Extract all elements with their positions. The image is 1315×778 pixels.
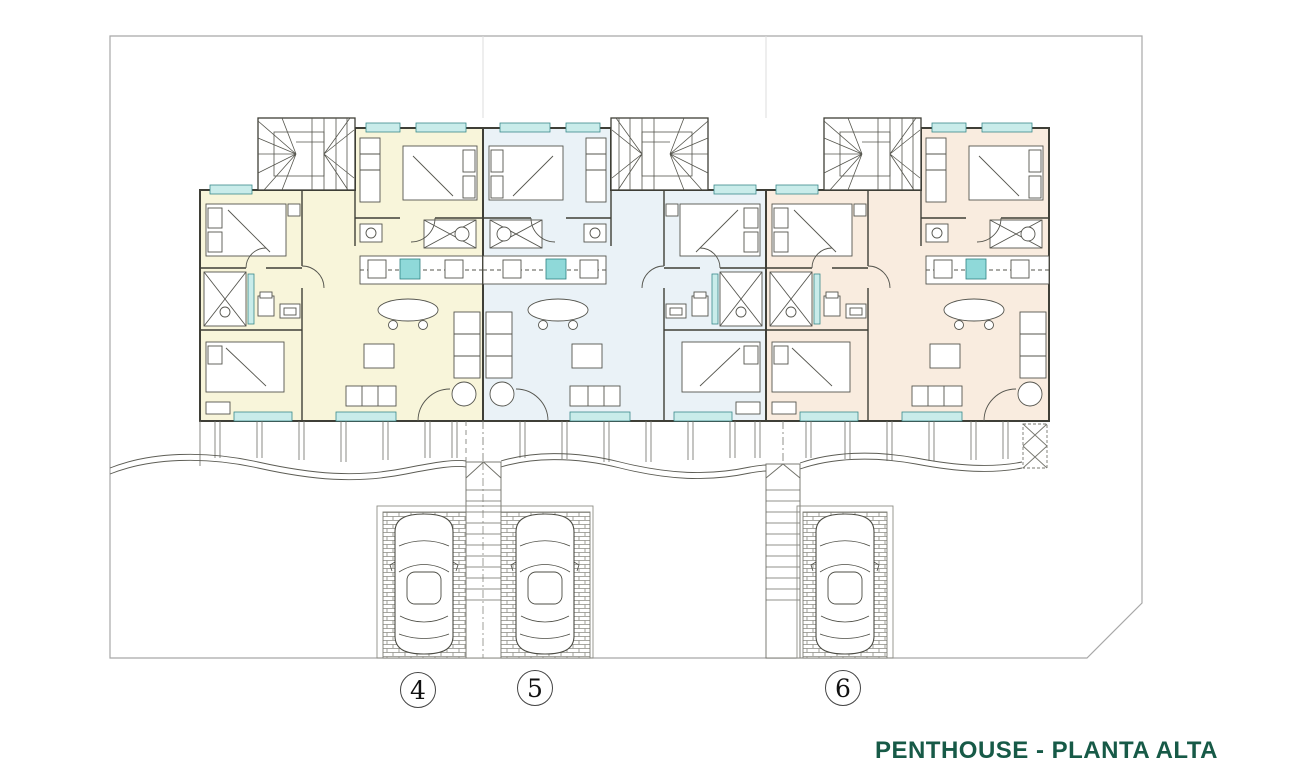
unit-number-6: 6 xyxy=(835,674,851,703)
car-6-icon xyxy=(811,514,879,654)
exterior-stair-middle xyxy=(466,462,501,658)
unit-5-plan xyxy=(483,118,766,421)
floor-plan-svg: 4 5 6 PENTHOUSE - PLANTA ALTA xyxy=(0,0,1315,778)
unit-badges: 4 5 6 xyxy=(401,671,861,708)
unit-6-plan xyxy=(766,118,1049,421)
terrace-posts xyxy=(200,421,1008,466)
unit-4-plan xyxy=(200,118,483,421)
unit-badge-4: 4 xyxy=(401,673,436,708)
car-5-icon xyxy=(511,514,579,654)
unit-number-4: 4 xyxy=(410,676,426,705)
unit-badge-6: 6 xyxy=(826,671,861,706)
shaft-column xyxy=(1023,424,1047,468)
floorplan-canvas: 4 5 6 PENTHOUSE - PLANTA ALTA xyxy=(0,0,1315,778)
exterior-stair-unit6 xyxy=(766,464,800,658)
unit-number-5: 5 xyxy=(527,674,543,703)
unit-badge-5: 5 xyxy=(518,671,553,706)
lot-divider-lines xyxy=(483,36,766,118)
terrace-edge-wavy-line xyxy=(110,453,1022,480)
car-4-icon xyxy=(390,514,458,654)
plan-title: PENTHOUSE - PLANTA ALTA xyxy=(875,737,1218,764)
